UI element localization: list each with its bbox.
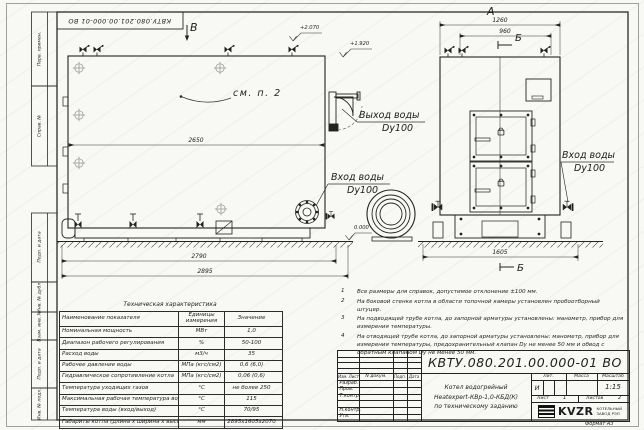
col-podp: Подп. <box>393 375 407 379</box>
water-inlet-left-dn: Dy100 <box>347 186 378 196</box>
table-row: Диапазон рабочего регулирования % 50-100 <box>60 337 282 348</box>
cell-units: % <box>178 338 224 348</box>
note-item: 1 Все размеры для справок, допустимое от… <box>341 288 624 296</box>
section-marker-b-bottom: Б <box>517 264 524 274</box>
elevation-zero: 0.000 <box>354 226 369 231</box>
cell-value: 1,0 <box>224 327 278 337</box>
note-item: 3 На подводящей трубе котла, до запорной… <box>341 315 624 331</box>
note-text: Все размеры для справок, допустимое откл… <box>357 288 624 296</box>
cell-name: Температура уходящих газов <box>60 383 178 393</box>
cell-name: Гидравлическое сопротивление котла <box>60 372 178 382</box>
table-row: Максимальная рабочая температура воды °С… <box>60 394 282 405</box>
cell-units: МПа (кгс/см2) <box>178 372 224 382</box>
table-row: Рабочее давление воды МПа (кгс/см2) 0,6 … <box>60 360 282 371</box>
tech-table-header-row: Наименование показателя Единицы измерени… <box>60 312 282 326</box>
cell-value: 0,06 (0,6) <box>224 372 278 382</box>
water-inlet-right-dn: Dy100 <box>574 164 605 174</box>
col-izm-list: Изм. Лист <box>338 375 359 379</box>
table-row: Расход воды м3/ч 35 <box>60 349 282 360</box>
description-line: Котел водогрейный <box>445 384 508 391</box>
cell-name: Максимальная рабочая температура воды <box>60 395 178 405</box>
table-row: Температура уходящих газов °С не более 2… <box>60 382 282 393</box>
mass-header: Масса <box>566 375 597 380</box>
kvzr-logo-text: KVZR <box>558 405 593 418</box>
scale-header: Масштаб <box>597 375 629 380</box>
margin-label-perv-primen: Перв. примен. <box>37 32 42 67</box>
sheets-label: Листов <box>586 397 603 402</box>
note-text: На подводящей трубе котла, до запорной а… <box>357 315 624 331</box>
cell-value: 70/95 <box>224 406 278 416</box>
margin-label-inv-dubl: Инв. № дубл. <box>37 281 42 312</box>
description-line: Heatexpert-КВр-1,0-КБД(К) <box>434 394 518 401</box>
cell-name: Рабочее давление воды <box>60 361 178 371</box>
view-marker-a: А <box>487 6 495 17</box>
margin-label-inv-podl: Инв. № подл. <box>37 388 42 420</box>
note-number: 2 <box>341 298 357 314</box>
note-number: 1 <box>341 288 357 296</box>
cell-value: 0,6 (6,0) <box>224 361 278 371</box>
top-stamp: КВТУ.080.201.00.000-01 ВО <box>57 12 183 29</box>
note-text: На боковой стенке котла в области топочн… <box>357 298 624 314</box>
lit-header: Лит. <box>531 375 566 380</box>
tech-table: Наименование показателя Единицы измерени… <box>59 311 283 429</box>
table-row: Гидравлическое сопротивление котла МПа (… <box>60 371 282 382</box>
title-block: Изм. Лист N докум. Подп. Дата Разраб. Пр… <box>337 350 630 422</box>
dim-1260: 1260 <box>492 18 507 24</box>
lit-value: И <box>531 385 543 392</box>
description-line: по техническому заданию <box>434 403 517 410</box>
water-outlet-dn: Dy100 <box>382 124 413 134</box>
table-row: Температура воды (вход/выход) °С 70/95 <box>60 405 282 416</box>
table-row: Габариты котла (длина х ширина х высота)… <box>60 416 282 427</box>
elevation-outlet: +1.920 <box>350 42 369 47</box>
col-data: Дата <box>407 375 421 379</box>
table-row: Номинальная мощность МВт 1,0 <box>60 326 282 337</box>
cell-value: 2895х1605х2070 <box>224 417 278 427</box>
row-n-kontr: Н.контр. <box>340 409 361 414</box>
cell-value: не более 250 <box>224 383 278 393</box>
product-description: Котел водогрейный Heatexpert-КВр-1,0-КБД… <box>421 373 531 421</box>
note-item: 2 На боковой стенке котла в области топо… <box>341 298 624 314</box>
dim-2895: 2895 <box>197 269 212 275</box>
cell-units: мм <box>178 417 224 427</box>
company-name: КОТЕЛЬНЫЙ ЗАВОД РЭП <box>596 407 622 416</box>
cell-units: °С <box>178 395 224 405</box>
format-label: Формат А3 <box>585 421 613 427</box>
see-item-callout: см. п. 2 <box>233 89 282 99</box>
water-inlet-left-label: Вход воды <box>331 173 384 183</box>
cell-name: Расход воды <box>60 350 178 360</box>
cell-value: 50-100 <box>224 338 278 348</box>
cell-units: °С <box>178 383 224 393</box>
tech-table-title: Техническая характеристика <box>59 301 281 308</box>
row-t-kontr: Т.контр. <box>340 395 361 400</box>
top-stamp-text: КВТУ.080.201.00.000-01 ВО <box>68 17 171 25</box>
cell-name: Номинальная мощность <box>60 327 178 337</box>
kvzr-logo-icon <box>538 405 555 418</box>
dim-2790: 2790 <box>191 254 206 260</box>
notes-list: 1 Все размеры для справок, допустимое от… <box>341 288 624 359</box>
dim-960: 960 <box>499 29 510 35</box>
cell-value: 115 <box>224 395 278 405</box>
scale-value: 1:15 <box>597 384 629 391</box>
sheets-value: 2 <box>618 396 621 401</box>
elevation-top: +2.070 <box>300 26 319 31</box>
margin-label-podp-data-1: Подп. и дата <box>37 231 42 262</box>
col-n-dokum: N докум. <box>359 375 393 380</box>
section-marker-b-top: Б <box>515 34 522 44</box>
drawing-sheet: КВТУ.080.201.00.000-01 ВО Перв. примен. … <box>0 0 644 430</box>
dim-2650: 2650 <box>188 138 203 144</box>
margin-label-vzam-inv: Взам. инв. № <box>37 310 42 341</box>
tech-col-value: Значение <box>224 312 278 326</box>
tech-col-name: Наименование показателя <box>60 312 178 326</box>
dim-1605: 1605 <box>492 250 507 256</box>
tech-col-units: Единицы измерения <box>178 312 224 326</box>
cell-value: 35 <box>224 350 278 360</box>
cell-name: Диапазон рабочего регулирования <box>60 338 178 348</box>
water-inlet-right-label: Вход воды <box>562 151 615 161</box>
cell-units: МВт <box>178 327 224 337</box>
note-number: 3 <box>341 315 357 331</box>
cell-name: Габариты котла (длина х ширина х высота) <box>60 417 178 427</box>
cell-name: Температура воды (вход/выход) <box>60 406 178 416</box>
cell-units: м3/ч <box>178 350 224 360</box>
margin-label-podp-data-2: Подп. и дата <box>37 348 42 379</box>
row-utv: Утв. <box>340 415 350 420</box>
doc-number: КВТУ.080.201.00.000-01 ВО <box>421 351 629 373</box>
row-razrab: Разраб. <box>340 382 359 387</box>
sheet-value: 1 <box>563 396 566 401</box>
view-marker-b: В <box>190 22 198 33</box>
water-outlet-label: Выход воды <box>359 111 420 121</box>
sheet-label: Лист <box>537 397 549 402</box>
cell-units: °С <box>178 406 224 416</box>
margin-label-sprav-n: Справ. № <box>37 115 42 137</box>
cell-units: МПа (кгс/см2) <box>178 361 224 371</box>
row-prov: Пров. <box>340 388 354 393</box>
company-logo: KVZR КОТЕЛЬНЫЙ ЗАВОД РЭП <box>531 402 629 421</box>
